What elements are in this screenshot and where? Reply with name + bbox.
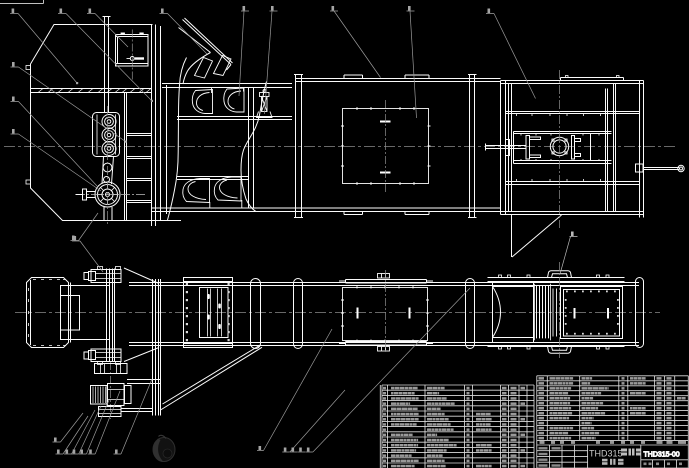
svg-text:THD315: THD315 xyxy=(589,449,623,459)
svg-text:THD315-00: THD315-00 xyxy=(644,452,680,459)
